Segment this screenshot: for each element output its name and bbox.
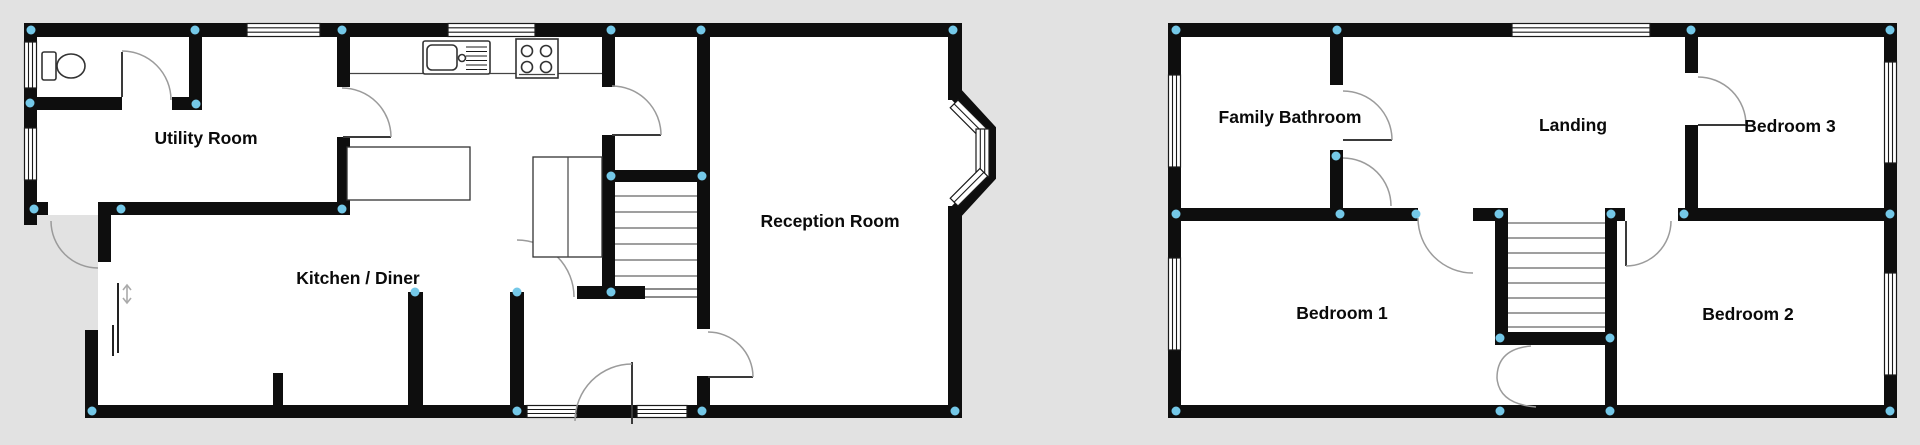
room-label-bedroom-3: Bedroom 3: [1744, 116, 1836, 136]
floorplan-canvas: Utility Room Kitchen / Diner Reception R…: [0, 0, 1920, 445]
toilet-icon: [42, 52, 85, 80]
room-label-reception-room: Reception Room: [760, 211, 899, 231]
ground-floor-plan: Utility Room Kitchen / Diner Reception R…: [24, 23, 990, 424]
first-floor-plan: Family Bathroom Landing Bedroom 3 Bedroo…: [1168, 23, 1897, 418]
room-label-utility-room: Utility Room: [154, 128, 257, 148]
room-label-bedroom-2: Bedroom 2: [1702, 304, 1794, 324]
room-label-bedroom-1: Bedroom 1: [1296, 303, 1388, 323]
kitchen-cupboard: [533, 157, 602, 257]
floorplan-drawing: Utility Room Kitchen / Diner Reception R…: [0, 0, 1920, 445]
room-label-family-bathroom: Family Bathroom: [1219, 107, 1362, 127]
kitchen-island: [347, 147, 470, 200]
hob-icon: [516, 39, 558, 78]
kitchen-sink-icon: [423, 41, 490, 74]
room-label-kitchen-diner: Kitchen / Diner: [296, 268, 420, 288]
room-label-landing: Landing: [1539, 115, 1607, 135]
